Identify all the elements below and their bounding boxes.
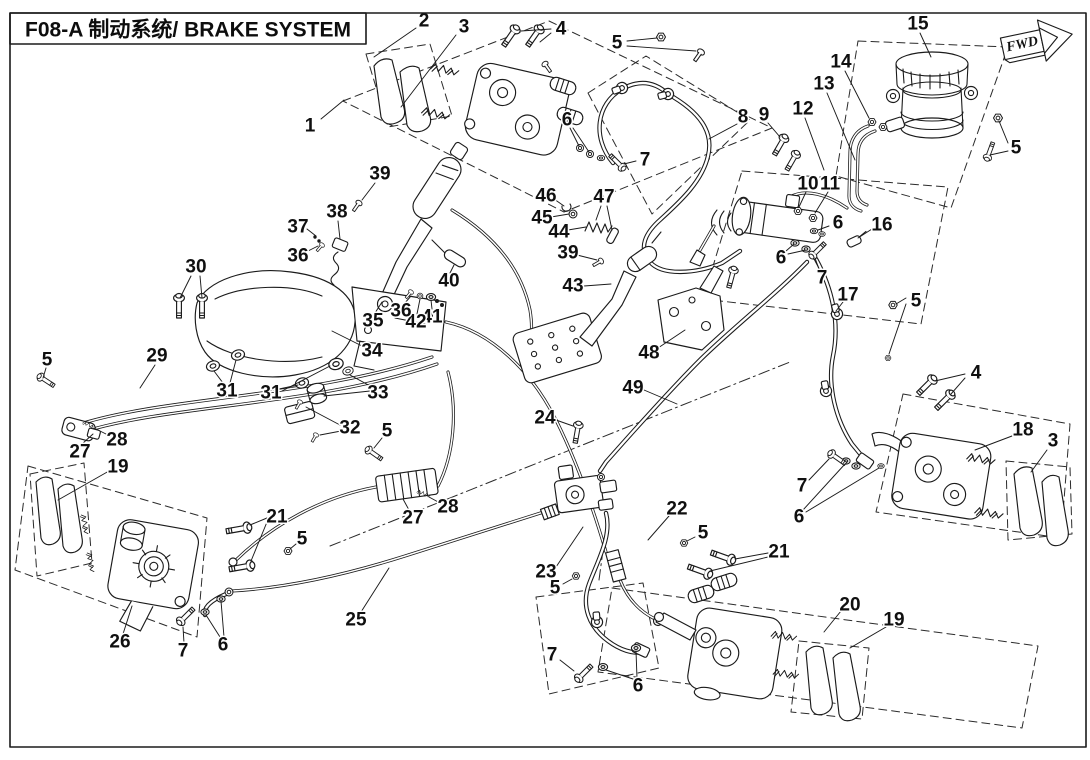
leader-line-4 xyxy=(935,374,965,381)
callout-10: 10 xyxy=(797,174,818,195)
callout-19: 19 xyxy=(107,457,128,478)
brake-fluid-reservoir xyxy=(868,52,1003,162)
callout-5: 5 xyxy=(550,578,561,599)
parts-diagram-page: 1234567891213141551011166671754183764645… xyxy=(0,0,1090,760)
leader-line-13 xyxy=(827,93,855,160)
callout-6: 6 xyxy=(794,507,805,528)
callout-7: 7 xyxy=(178,641,189,662)
callout-3: 3 xyxy=(1048,431,1059,452)
leader-line-19 xyxy=(850,627,886,648)
leader-line-21 xyxy=(710,557,768,571)
leader-line-1 xyxy=(321,100,344,119)
leader-line-7 xyxy=(809,459,829,480)
leader-line-39 xyxy=(362,183,375,200)
leader-line-23 xyxy=(556,527,583,567)
leader-line-16 xyxy=(858,229,872,238)
construction-line xyxy=(330,362,790,546)
leader-line-3 xyxy=(1031,450,1047,472)
callout-5: 5 xyxy=(698,523,709,544)
callout-34: 34 xyxy=(361,341,383,362)
callout-15: 15 xyxy=(907,14,929,35)
leader-line-5 xyxy=(999,121,1008,143)
callout-9: 9 xyxy=(759,105,770,126)
callout-36: 36 xyxy=(390,301,411,322)
callout-39: 39 xyxy=(369,164,390,185)
callout-5: 5 xyxy=(911,291,922,312)
callout-4: 4 xyxy=(556,19,567,40)
callout-22: 22 xyxy=(666,499,687,520)
leader-line-45 xyxy=(551,214,569,217)
leader-line-25 xyxy=(361,568,389,612)
leader-line-44 xyxy=(568,227,586,230)
callout-30: 30 xyxy=(185,257,206,278)
leader-line-22 xyxy=(648,516,669,540)
callout-25: 25 xyxy=(345,610,367,631)
fwd-arrow: FWD xyxy=(998,14,1076,70)
front-brake-pads-left xyxy=(374,59,459,132)
leader-line-2 xyxy=(374,28,416,57)
rear-hose-hardware xyxy=(174,588,650,685)
rear-right-brake-caliper xyxy=(655,547,799,709)
callout-7: 7 xyxy=(797,476,808,497)
callout-8: 8 xyxy=(738,107,749,128)
callout-29: 29 xyxy=(146,346,167,367)
leader-line-4 xyxy=(540,33,551,42)
callout-13: 13 xyxy=(813,74,834,95)
callout-35: 35 xyxy=(362,311,384,332)
leader-line-9 xyxy=(768,123,780,137)
leader-line-4 xyxy=(951,378,965,394)
leader-line-5 xyxy=(687,537,695,541)
leader-line-7 xyxy=(560,660,574,671)
leader-line-30 xyxy=(180,276,191,298)
callout-38: 38 xyxy=(326,202,347,223)
leader-line-43 xyxy=(584,284,611,286)
leader-line-39 xyxy=(577,255,597,260)
callout-7: 7 xyxy=(817,268,828,289)
callout-5: 5 xyxy=(1011,138,1022,159)
leader-line-5 xyxy=(627,38,657,41)
callout-27: 27 xyxy=(402,508,423,529)
callout-20: 20 xyxy=(839,595,860,616)
leader-line-14 xyxy=(845,71,869,118)
callout-6: 6 xyxy=(562,110,573,131)
callout-21: 21 xyxy=(266,507,288,528)
callout-24: 24 xyxy=(534,408,556,429)
leader-line-5 xyxy=(889,304,906,354)
callout-48: 48 xyxy=(638,343,659,364)
leader-line-5 xyxy=(990,151,1008,155)
caliper-mount-bolts-front-left xyxy=(499,23,546,49)
callout-5: 5 xyxy=(297,529,308,550)
brake-system-diagram: 1234567891213141551011166671754183764645… xyxy=(0,0,1090,760)
callout-6: 6 xyxy=(633,676,644,697)
callout-5: 5 xyxy=(612,33,623,54)
callout-32: 32 xyxy=(339,418,360,439)
leader-line-5 xyxy=(290,544,296,549)
leader-line-6 xyxy=(636,651,637,678)
leader-line-29 xyxy=(140,365,155,388)
callout-28: 28 xyxy=(106,430,127,451)
leader-line-18 xyxy=(975,436,1012,450)
callout-31: 31 xyxy=(216,381,238,402)
callout-12: 12 xyxy=(792,99,813,120)
callout-49: 49 xyxy=(622,378,643,399)
callout-27: 27 xyxy=(69,442,90,463)
callout-6: 6 xyxy=(833,213,844,234)
callout-36: 36 xyxy=(287,246,308,267)
callout-21: 21 xyxy=(768,542,790,563)
callout-4: 4 xyxy=(971,363,982,384)
front-hose-hardware xyxy=(576,33,802,173)
leader-line-47 xyxy=(596,206,601,220)
leader-line-5 xyxy=(627,46,696,51)
callout-28: 28 xyxy=(437,497,458,518)
callout-40: 40 xyxy=(438,271,459,292)
callout-6: 6 xyxy=(218,635,229,656)
leader-line-21 xyxy=(251,522,267,561)
leader-line-32 xyxy=(320,431,341,435)
leader-line-6 xyxy=(221,601,224,637)
rear-brake-pads-right xyxy=(806,646,860,721)
callout-47: 47 xyxy=(593,187,614,208)
callout-46: 46 xyxy=(535,186,556,207)
callout-1: 1 xyxy=(305,116,316,137)
callout-17: 17 xyxy=(837,285,858,306)
callout-18: 18 xyxy=(1012,420,1033,441)
leader-line-5 xyxy=(563,579,572,584)
callout-37: 37 xyxy=(287,217,308,238)
leader-line-6 xyxy=(806,468,879,512)
callout-44: 44 xyxy=(548,222,570,243)
leader-line-47 xyxy=(607,206,612,230)
callout-26: 26 xyxy=(109,632,130,653)
callout-19: 19 xyxy=(883,610,904,631)
front-brake-pads-right xyxy=(1014,467,1068,546)
leader-line-6 xyxy=(803,464,845,510)
leader-line-7 xyxy=(624,161,636,164)
leader-line-38 xyxy=(338,221,340,239)
leader-line-21 xyxy=(250,518,267,525)
callout-5: 5 xyxy=(42,350,53,371)
page-title: F08-A 制动系统/ BRAKE SYSTEM xyxy=(25,18,351,42)
callout-5: 5 xyxy=(382,421,393,442)
callout-33: 33 xyxy=(367,383,388,404)
callout-43: 43 xyxy=(562,276,583,297)
leader-line-12 xyxy=(805,118,824,170)
callout-16: 16 xyxy=(871,215,892,236)
callout-11: 11 xyxy=(820,174,841,195)
callout-31: 31 xyxy=(260,383,282,404)
callout-39: 39 xyxy=(557,243,578,264)
callout-7: 7 xyxy=(547,645,558,666)
callout-6: 6 xyxy=(776,248,787,269)
callout-3: 3 xyxy=(459,17,470,38)
leader-line-6 xyxy=(786,244,794,251)
callout-14: 14 xyxy=(830,52,852,73)
leader-line-5 xyxy=(896,298,906,304)
callout-7: 7 xyxy=(640,150,651,171)
